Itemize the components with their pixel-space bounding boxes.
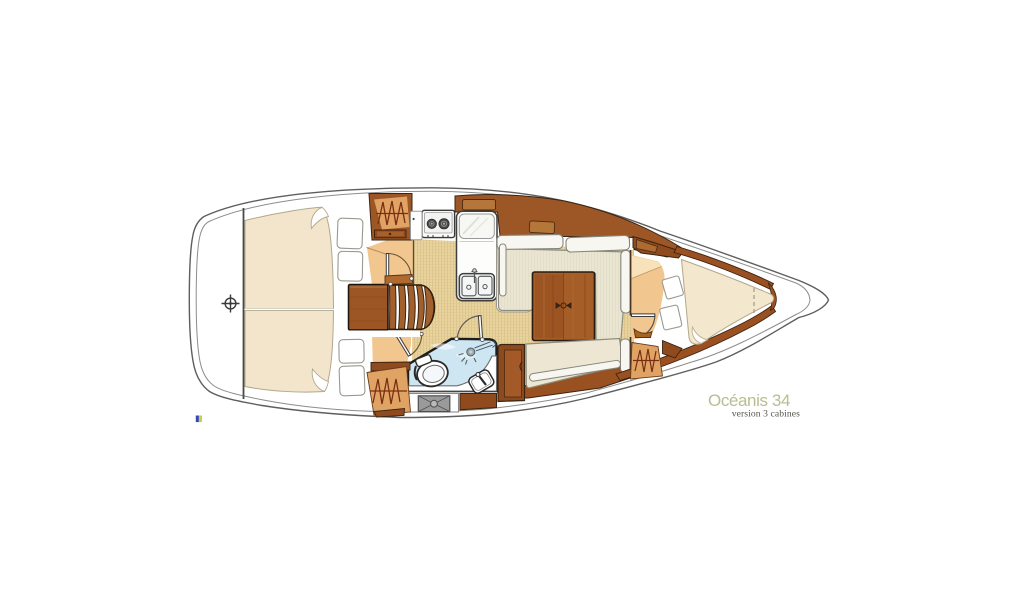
svg-text:Océanis 34: Océanis 34 <box>708 391 790 410</box>
svg-text:version 3 cabines: version 3 cabines <box>732 409 800 420</box>
